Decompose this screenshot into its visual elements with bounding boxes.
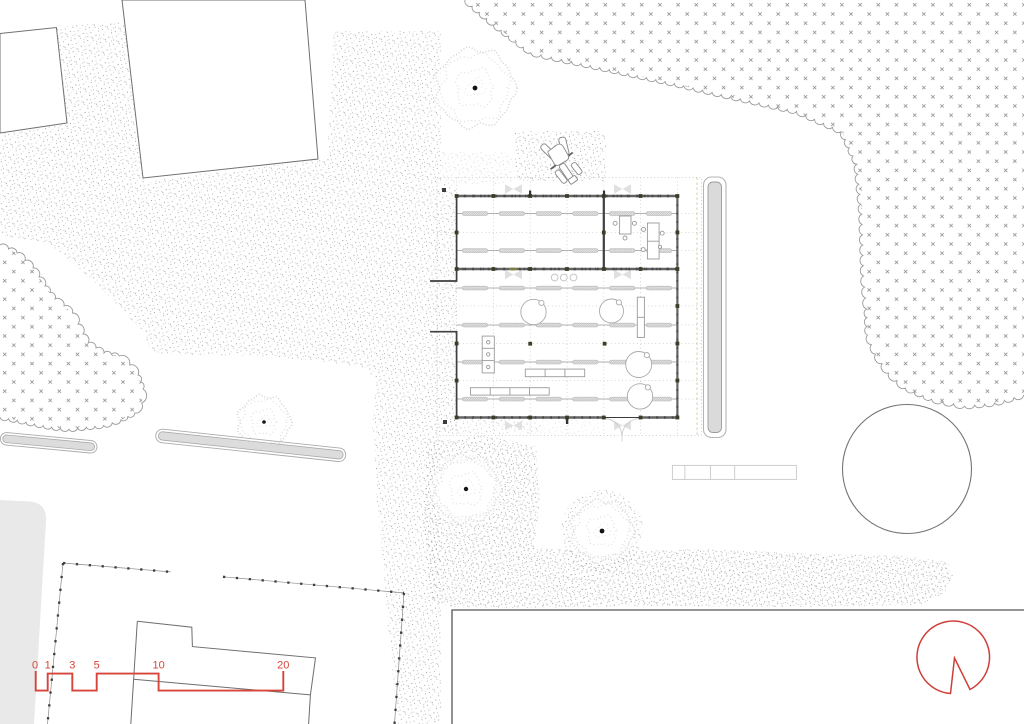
svg-text:3: 3 — [69, 660, 75, 672]
svg-text:20: 20 — [277, 660, 289, 672]
svg-text:5: 5 — [94, 660, 100, 672]
svg-text:0: 0 — [32, 660, 38, 672]
svg-text:1: 1 — [45, 660, 51, 672]
svg-text:10: 10 — [152, 660, 164, 672]
